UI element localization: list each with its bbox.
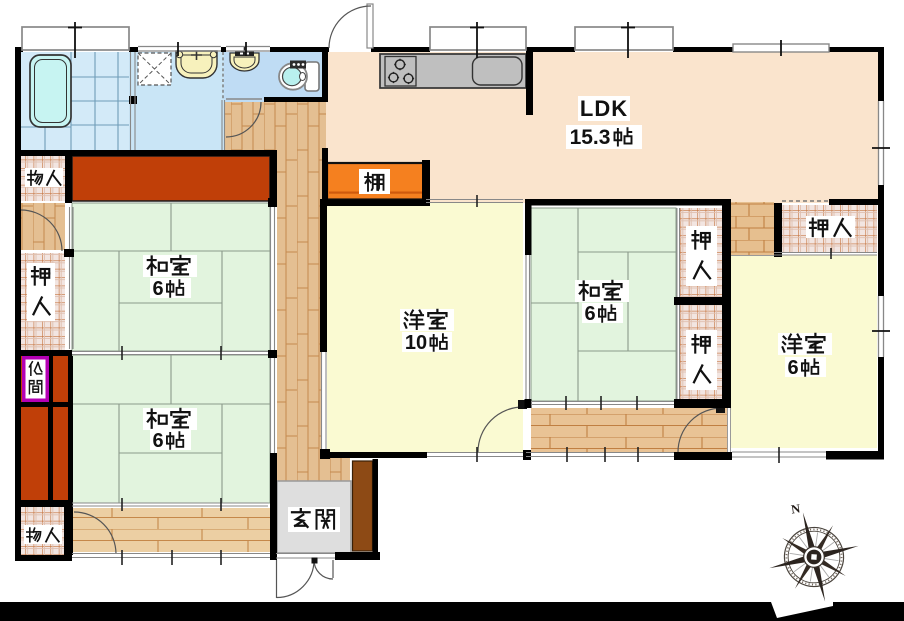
svg-text:10: 10: [405, 332, 427, 354]
svg-text:6: 6: [584, 303, 595, 325]
svg-text:6: 6: [787, 357, 798, 379]
svg-text:6: 6: [152, 430, 163, 452]
svg-text:6: 6: [152, 278, 163, 300]
svg-text:N: N: [790, 502, 801, 517]
svg-text:LDK: LDK: [580, 96, 628, 121]
svg-text:15.3: 15.3: [570, 126, 611, 149]
